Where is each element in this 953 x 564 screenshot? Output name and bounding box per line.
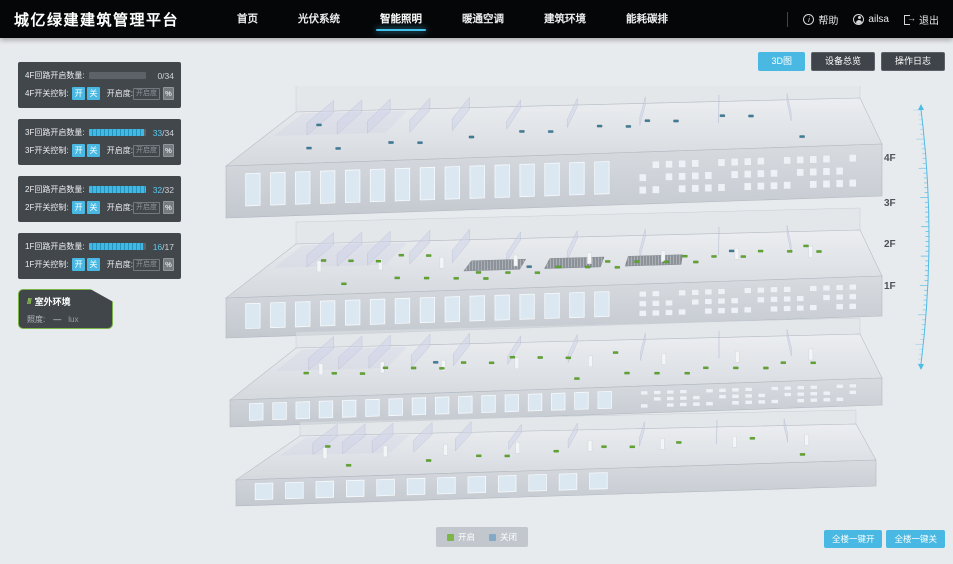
floor-panel-2f: 2F回路开启数量: 32/32 2F开关控制: 开 关 开启度: % <box>18 176 181 222</box>
nav-item-label: 建筑环境 <box>544 13 586 25</box>
circuit-count-label: 3F回路开启数量: <box>25 127 85 138</box>
nav-item-label: 智能照明 <box>380 13 422 25</box>
switch-control-label: 4F开关控制: <box>25 88 69 99</box>
switch-off-button[interactable]: 关 <box>87 87 100 100</box>
dim-level-input[interactable] <box>133 259 160 271</box>
view-3d-button[interactable]: 3D图 <box>758 52 805 71</box>
view-toolbar: 3D图 设备总览 操作日志 <box>758 52 945 71</box>
circuit-on-count: 33 <box>153 128 162 138</box>
circuit-progress-fill <box>89 129 145 136</box>
help-icon <box>803 14 814 25</box>
nav-item-label: 光伏系统 <box>298 13 340 25</box>
main-nav: 首页 光伏系统 智能照明 暖通空调 建筑环境 能耗碳排 <box>217 0 688 38</box>
user-avatar-icon <box>853 14 864 25</box>
device-overview-button[interactable]: 设备总览 <box>811 52 875 71</box>
percent-button[interactable]: % <box>163 87 174 100</box>
outdoor-env-title: 室外环境 <box>35 295 71 308</box>
building-3d-view[interactable] <box>212 86 904 526</box>
floor-panel-1f: 1F回路开启数量: 16/17 1F开关控制: 开 关 开启度: % <box>18 233 181 279</box>
dim-level-label: 开启度: <box>107 202 133 213</box>
help-label: 帮助 <box>818 12 838 27</box>
user-menu[interactable]: ailsa <box>853 14 889 25</box>
switch-control-label: 3F开关控制: <box>25 145 69 156</box>
switch-control-label: 1F开关控制: <box>25 259 69 270</box>
dim-level-label: 开启度: <box>107 145 133 156</box>
switch-on-button[interactable]: 开 <box>72 258 85 271</box>
nav-item-2[interactable]: 智能照明 <box>360 0 442 38</box>
circuit-count-value: 0/34 <box>150 71 174 81</box>
nav-item-label: 能耗碳排 <box>626 13 668 25</box>
illuminance-label: 照度: <box>27 314 45 325</box>
legend-on: 开启 <box>447 531 475 543</box>
dim-level-input[interactable] <box>133 88 160 100</box>
circuit-count-label: 4F回路开启数量: <box>25 70 85 81</box>
building-3d-svg <box>212 86 904 526</box>
header-user-area: 帮助 ailsa 退出 <box>787 12 939 27</box>
percent-button[interactable]: % <box>163 144 174 157</box>
circuit-count-value: 32/32 <box>150 185 174 195</box>
circuit-progress-fill <box>89 186 146 193</box>
floor-marker-2f[interactable]: 2F <box>884 239 896 250</box>
circuit-count-label: 2F回路开启数量: <box>25 184 85 195</box>
legend-off-swatch <box>489 534 496 541</box>
nav-item-4[interactable]: 建筑环境 <box>524 0 606 38</box>
legend-on-swatch <box>447 534 454 541</box>
circuit-total-count: /17 <box>162 242 174 252</box>
header: 城亿绿建建筑管理平台 首页 光伏系统 智能照明 暖通空调 建筑环境 能耗碳排 帮… <box>0 0 953 38</box>
circuit-count-value: 16/17 <box>150 242 174 252</box>
circuit-total-count: /34 <box>162 128 174 138</box>
switch-off-button[interactable]: 关 <box>87 201 100 214</box>
illuminance-unit: lux <box>68 315 78 324</box>
floor-scale-ruler[interactable] <box>908 102 942 374</box>
floor-marker-3f[interactable]: 3F <box>884 198 896 209</box>
circuit-on-count: 16 <box>153 242 162 252</box>
dim-level-label: 开启度: <box>107 88 133 99</box>
nav-item-label: 首页 <box>237 13 258 25</box>
floor-marker-1f[interactable]: 1F <box>884 281 896 292</box>
nav-item-5[interactable]: 能耗碳排 <box>606 0 688 38</box>
dim-level-input[interactable] <box>133 145 160 157</box>
legend-off: 关闭 <box>489 531 517 543</box>
switch-on-button[interactable]: 开 <box>72 144 85 157</box>
user-name: ailsa <box>868 14 889 25</box>
whole-building-actions: 全楼一键开 全楼一键关 <box>824 530 945 548</box>
nav-item-3[interactable]: 暖通空调 <box>442 0 524 38</box>
operation-log-button[interactable]: 操作日志 <box>881 52 945 71</box>
switch-on-button[interactable]: 开 <box>72 201 85 214</box>
dim-level-input[interactable] <box>133 202 160 214</box>
legend-off-label: 关闭 <box>500 531 517 543</box>
circuit-progress-bar <box>89 129 146 136</box>
logout-button[interactable]: 退出 <box>904 12 939 27</box>
circuit-total-count: /34 <box>162 71 174 81</box>
floor-panel-3f: 3F回路开启数量: 33/34 3F开关控制: 开 关 开启度: % <box>18 119 181 165</box>
all-floors-on-button[interactable]: 全楼一键开 <box>824 530 883 548</box>
legend-on-label: 开启 <box>458 531 475 543</box>
circuit-on-count: 32 <box>153 185 162 195</box>
floor-marker-4f[interactable]: 4F <box>884 153 896 164</box>
page-title: 城亿绿建建筑管理平台 <box>14 9 179 30</box>
illuminance-value: — <box>53 315 61 324</box>
percent-button[interactable]: % <box>163 258 174 271</box>
switch-off-button[interactable]: 关 <box>87 144 100 157</box>
floor-panel-4f: 4F回路开启数量: 0/34 4F开关控制: 开 关 开启度: % <box>18 62 181 108</box>
logout-icon <box>904 14 915 25</box>
outdoor-env-header: 室外环境 <box>27 295 104 308</box>
app-root: 城亿绿建建筑管理平台 首页 光伏系统 智能照明 暖通空调 建筑环境 能耗碳排 帮… <box>0 0 953 564</box>
circuit-progress-bar <box>89 186 146 193</box>
light-status-legend: 开启 关闭 <box>436 527 528 547</box>
circuit-progress-fill <box>89 243 143 250</box>
nav-item-label: 暖通空调 <box>462 13 504 25</box>
nav-item-1[interactable]: 光伏系统 <box>278 0 360 38</box>
switch-on-button[interactable]: 开 <box>72 87 85 100</box>
outdoor-env-icon <box>27 297 31 306</box>
dim-level-label: 开启度: <box>107 259 133 270</box>
circuit-total-count: /32 <box>162 185 174 195</box>
outdoor-env-panel: 室外环境 照度: — lux <box>18 289 113 329</box>
nav-item-0[interactable]: 首页 <box>217 0 278 38</box>
help-button[interactable]: 帮助 <box>803 12 838 27</box>
circuit-progress-bar <box>89 72 146 79</box>
logout-label: 退出 <box>919 12 939 27</box>
switch-control-label: 2F开关控制: <box>25 202 69 213</box>
switch-off-button[interactable]: 关 <box>87 258 100 271</box>
illuminance-row: 照度: — lux <box>27 314 104 325</box>
all-floors-off-button[interactable]: 全楼一键关 <box>886 530 945 548</box>
percent-button[interactable]: % <box>163 201 174 214</box>
circuit-count-label: 1F回路开启数量: <box>25 241 85 252</box>
circuit-count-value: 33/34 <box>150 128 174 138</box>
header-divider <box>787 12 788 27</box>
circuit-progress-bar <box>89 243 146 250</box>
